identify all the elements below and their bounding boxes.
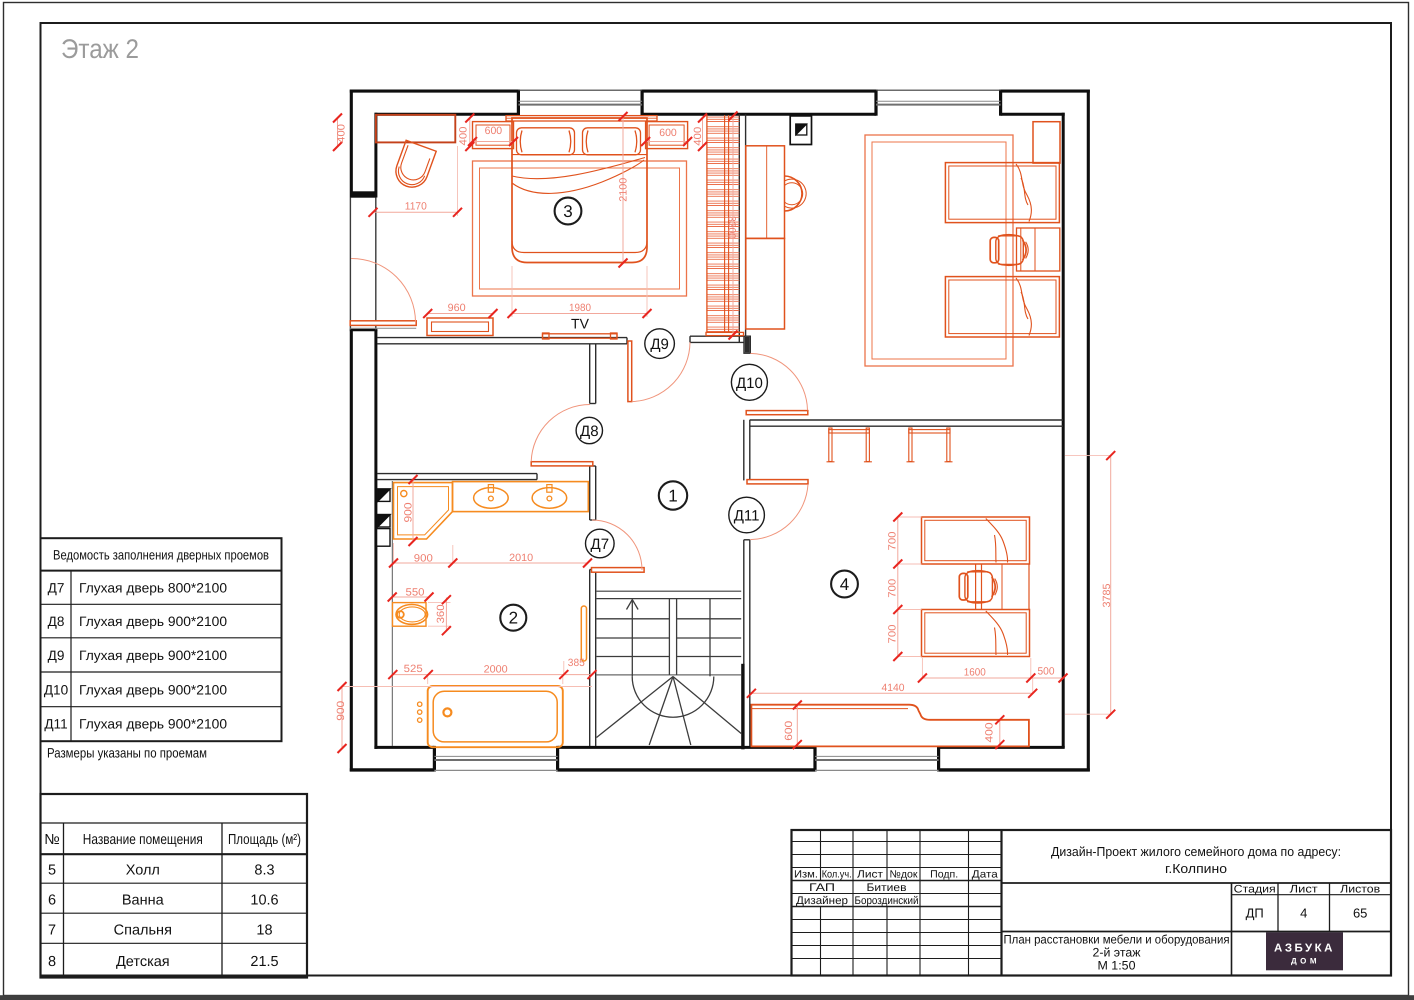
svg-text:525: 525	[404, 663, 423, 675]
svg-text:Глухая дверь 900*2100: Глухая дверь 900*2100	[79, 648, 227, 663]
svg-text:Д10: Д10	[736, 375, 763, 392]
svg-text:Глухая дверь 800*2100: Глухая дверь 800*2100	[79, 581, 227, 596]
svg-text:Этаж 2: Этаж 2	[61, 34, 139, 64]
svg-text:Стадия: Стадия	[1234, 883, 1276, 895]
svg-text:Дизайн-Проект жилого семейного: Дизайн-Проект жилого семейного дома по а…	[1051, 844, 1341, 859]
svg-text:Название помещения: Название помещения	[83, 832, 203, 848]
svg-text:Изм.: Изм.	[794, 869, 818, 881]
svg-text:Площадь (м²): Площадь (м²)	[228, 832, 301, 848]
svg-text:400: 400	[458, 126, 470, 145]
svg-text:Подп.: Подп.	[930, 869, 958, 881]
svg-text:Детская: Детская	[116, 954, 170, 970]
svg-text:Д11: Д11	[44, 717, 67, 732]
svg-text:1: 1	[668, 487, 677, 506]
svg-text:400: 400	[336, 124, 348, 143]
svg-text:№док: №док	[890, 869, 918, 881]
svg-text:2-й этаж: 2-й этаж	[1093, 946, 1142, 960]
svg-text:10.6: 10.6	[250, 893, 278, 909]
svg-text:900: 900	[403, 502, 415, 522]
svg-text:TV: TV	[571, 316, 590, 332]
svg-text:7: 7	[48, 923, 56, 939]
svg-text:700: 700	[887, 624, 899, 643]
svg-text:2: 2	[509, 609, 518, 628]
svg-text:385: 385	[568, 657, 585, 669]
svg-text:3785: 3785	[1101, 583, 1113, 607]
svg-text:4: 4	[840, 575, 849, 594]
svg-text:Битиев: Битиев	[867, 882, 907, 894]
svg-text:ДОМ: ДОМ	[1291, 957, 1320, 966]
svg-text:Лист: Лист	[857, 869, 883, 881]
svg-text:Спальня: Спальня	[114, 923, 172, 939]
svg-text:Д7: Д7	[48, 581, 65, 596]
svg-text:2000: 2000	[484, 664, 508, 676]
svg-text:600: 600	[485, 125, 503, 137]
svg-text:600: 600	[783, 721, 795, 741]
svg-text:360: 360	[435, 604, 447, 623]
svg-text:Ведомость заполнения дверных п: Ведомость заполнения дверных проемов	[53, 548, 269, 563]
svg-text:900: 900	[414, 553, 433, 565]
svg-text:1980: 1980	[569, 302, 591, 314]
svg-text:ДП: ДП	[1246, 906, 1264, 921]
svg-text:3: 3	[563, 202, 572, 221]
svg-text:8: 8	[48, 954, 56, 970]
svg-text:Д11: Д11	[734, 508, 760, 525]
svg-text:4: 4	[1300, 906, 1307, 921]
svg-text:Глухая дверь 900*2100: Глухая дверь 900*2100	[79, 683, 227, 698]
svg-text:Глухая дверь 900*2100: Глухая дверь 900*2100	[79, 614, 227, 629]
svg-text:Кол.уч.: Кол.уч.	[822, 869, 852, 881]
svg-text:700: 700	[887, 531, 899, 550]
svg-text:М 1:50: М 1:50	[1098, 959, 1136, 973]
svg-text:Дата: Дата	[972, 869, 998, 881]
svg-text:900: 900	[335, 701, 347, 721]
svg-text:АЗБУКА: АЗБУКА	[1274, 943, 1335, 955]
svg-text:Д10: Д10	[44, 683, 69, 698]
svg-text:Бороздинский: Бороздинский	[855, 895, 919, 907]
svg-text:Холл: Холл	[126, 863, 160, 879]
svg-text:600: 600	[659, 127, 677, 139]
svg-text:ГАП: ГАП	[809, 882, 835, 894]
svg-text:Д8: Д8	[48, 614, 65, 629]
svg-text:400: 400	[692, 127, 704, 146]
svg-text:2100: 2100	[618, 178, 630, 202]
svg-text:2010: 2010	[509, 552, 533, 564]
svg-text:Размеры указаны по проемам: Размеры указаны по проемам	[47, 746, 207, 761]
svg-text:21.5: 21.5	[250, 954, 278, 970]
svg-text:Ванна: Ванна	[122, 893, 165, 909]
svg-text:500: 500	[1038, 666, 1055, 678]
svg-text:Дизайнер: Дизайнер	[796, 895, 848, 907]
svg-text:550: 550	[406, 587, 425, 599]
svg-text:Д7: Д7	[591, 536, 610, 553]
svg-text:18: 18	[256, 923, 272, 939]
svg-text:6: 6	[48, 893, 56, 909]
svg-text:1600: 1600	[964, 667, 986, 679]
svg-text:960: 960	[448, 302, 466, 314]
svg-text:Листов: Листов	[1340, 883, 1380, 895]
svg-text:8.3: 8.3	[254, 863, 274, 879]
svg-text:Д9: Д9	[48, 648, 65, 663]
svg-text:400: 400	[984, 722, 996, 742]
svg-text:№: №	[44, 832, 60, 848]
svg-text:Лист: Лист	[1290, 883, 1318, 895]
svg-text:3300: 3300	[725, 216, 737, 239]
svg-text:4140: 4140	[882, 682, 905, 694]
svg-text:Д8: Д8	[580, 423, 599, 440]
svg-text:План расстановки мебели и обор: План расстановки мебели и оборудования	[1004, 933, 1230, 947]
svg-text:700: 700	[887, 579, 899, 598]
svg-text:г.Колпино: г.Колпино	[1165, 861, 1227, 876]
svg-text:Глухая дверь 900*2100: Глухая дверь 900*2100	[79, 717, 227, 732]
svg-text:65: 65	[1353, 906, 1367, 921]
svg-text:1170: 1170	[405, 201, 427, 213]
svg-text:5: 5	[48, 863, 56, 879]
svg-text:Д9: Д9	[650, 336, 669, 353]
